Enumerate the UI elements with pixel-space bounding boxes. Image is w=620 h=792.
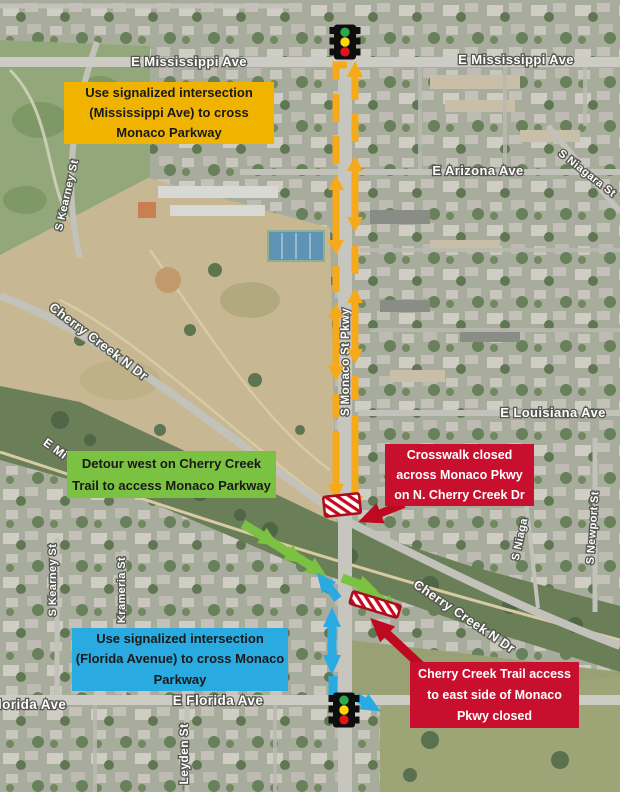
street-label-mississippi-left: E Mississippi Ave (131, 54, 247, 69)
callout-line: Monaco Parkway (64, 123, 274, 143)
callout-line: (Mississippi Ave) to cross (64, 103, 274, 123)
callout-mississippi-crossing: Use signalized intersection (Mississippi… (64, 82, 274, 144)
street-label-arizona: E Arizona Ave (432, 163, 523, 178)
callout-line: Parkway (72, 670, 288, 691)
callout-line: Trail to access Monaco Parkway (67, 475, 276, 496)
callout-florida-crossing: Use signalized intersection (Florida Ave… (72, 628, 288, 691)
detour-map: E Mississippi Ave E Mississippi Ave E Ar… (0, 0, 620, 792)
callout-line: Detour west on Cherry Creek (67, 453, 276, 474)
callout-line: to east side of Monaco (410, 685, 579, 706)
street-label-louisiana: E Louisiana Ave (500, 405, 605, 420)
street-label-monaco: S Monaco St Pkwy (340, 308, 352, 416)
street-label-florida-partial: lorida Ave (0, 697, 66, 712)
street-label-mississippi-right: E Mississippi Ave (458, 52, 574, 67)
callout-line: (Florida Avenue) to cross Monaco (72, 649, 288, 670)
callout-line: Use signalized intersection (64, 83, 274, 103)
callout-line: Cherry Creek Trail access (410, 664, 579, 685)
callout-line: Use signalized intersection (72, 629, 288, 650)
street-label-florida-center: E Florida Ave (173, 693, 264, 708)
street-label-krameria: Krameria St (116, 557, 128, 623)
callout-trail-access-closed: Cherry Creek Trail access to east side o… (410, 662, 579, 728)
callout-crosswalk-closed: Crosswalk closed across Monaco Pkwy on N… (385, 444, 534, 506)
callout-line: Crosswalk closed (385, 445, 534, 465)
callout-trail-detour: Detour west on Cherry Creek Trail to acc… (67, 451, 276, 498)
traffic-light-icon-mississippi (330, 25, 361, 60)
crosswalk-closure-hatch (323, 493, 361, 517)
callout-line: across Monaco Pkwy (385, 465, 534, 485)
traffic-light-icon-florida (329, 693, 360, 728)
street-label-kearney-south: S Kearney St (47, 544, 59, 617)
street-label-leyden: Leyden St (177, 724, 191, 785)
callout-line: Pkwy closed (410, 706, 579, 727)
callout-line: on N. Cherry Creek Dr (385, 485, 534, 505)
